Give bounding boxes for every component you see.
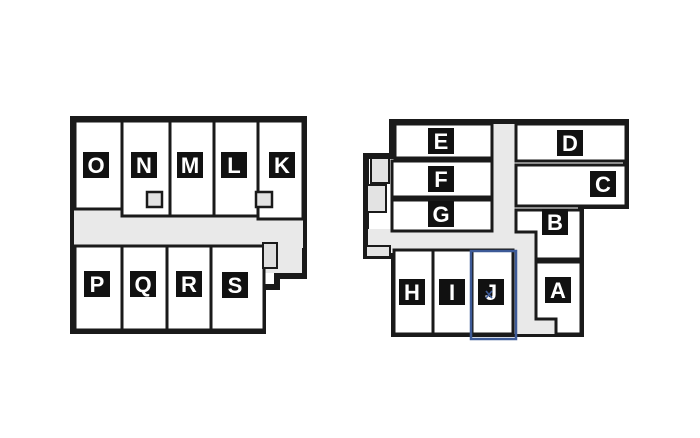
room-label-text: S — [228, 273, 243, 298]
building-right: E F G D C B H — [366, 122, 626, 339]
room-label-E[interactable]: E — [428, 128, 454, 154]
room-label-N[interactable]: N — [131, 152, 157, 178]
room-label-text: L — [227, 153, 240, 178]
room-label-text: G — [432, 202, 449, 227]
room-label-text: D — [562, 131, 578, 156]
corridor-right-bottom-notch — [513, 319, 556, 334]
room-label-Q[interactable]: Q — [130, 271, 156, 297]
room-label-D[interactable]: D — [557, 130, 583, 156]
room-label-text: B — [547, 210, 563, 235]
room-label-K[interactable]: K — [269, 152, 295, 178]
floorplan-canvas: O N M L K P Q — [0, 0, 700, 438]
room-label-text: Q — [134, 272, 151, 297]
room-label-text: P — [90, 272, 105, 297]
room-label-F[interactable]: F — [428, 166, 454, 192]
room-label-text: A — [550, 278, 566, 303]
floorplan-page: O N M L K P Q — [0, 0, 700, 438]
room-label-text: M — [181, 153, 199, 178]
room-label-text: F — [434, 167, 447, 192]
room-label-I[interactable]: I — [439, 279, 465, 305]
room-label-text: I — [449, 280, 455, 305]
room-label-B[interactable]: B — [542, 209, 568, 235]
stairwell-area-middle — [367, 185, 386, 212]
room-label-text: E — [434, 129, 449, 154]
vestibule-area — [263, 243, 277, 268]
room-label-M[interactable]: M — [177, 152, 203, 178]
room-label-P[interactable]: P — [84, 271, 110, 297]
room-label-text: H — [404, 280, 420, 305]
building-left: O N M L K P Q — [73, 119, 304, 331]
room-label-text: R — [181, 272, 197, 297]
room-label-text: O — [87, 153, 104, 178]
stairwell-area-upper — [371, 158, 389, 183]
room-label-S[interactable]: S — [222, 272, 248, 298]
room-label-H[interactable]: H — [399, 279, 425, 305]
room-label-C[interactable]: C — [590, 171, 616, 197]
room-label-R[interactable]: R — [176, 271, 202, 297]
room-label-O[interactable]: O — [83, 152, 109, 178]
room-label-text: N — [136, 153, 152, 178]
door-marker-K — [256, 192, 272, 207]
stairwell-area-lower — [366, 246, 390, 257]
room-label-text: K — [274, 153, 290, 178]
room-label-A[interactable]: A — [545, 277, 571, 303]
room-label-G[interactable]: G — [428, 201, 454, 227]
door-marker-N — [147, 192, 162, 207]
room-label-L[interactable]: L — [221, 152, 247, 178]
room-label-text: C — [595, 172, 611, 197]
